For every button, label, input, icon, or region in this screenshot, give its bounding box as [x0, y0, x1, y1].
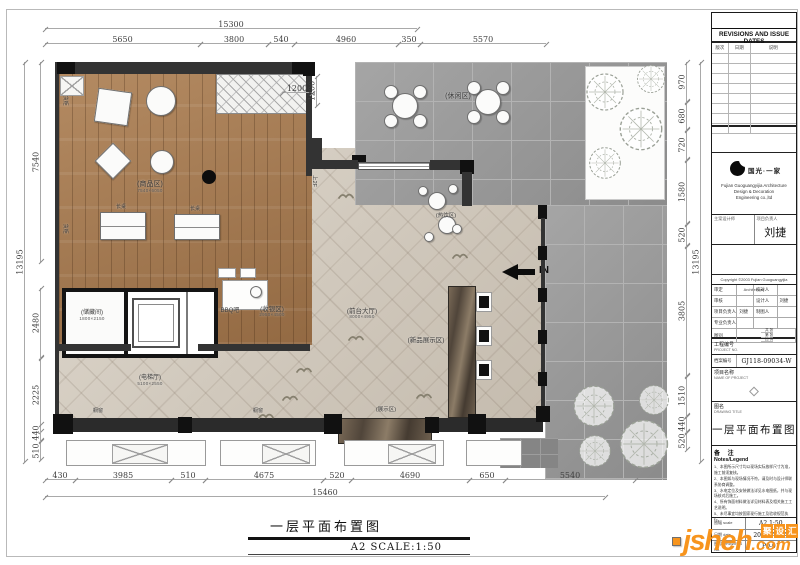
rev-cell	[729, 114, 751, 123]
room-label: (储藏间)1800×2150	[79, 310, 104, 322]
note-line: 1、本图所示尺寸均以现场实际放样尺寸为准，施工前须复核。	[714, 465, 794, 477]
logo-icon	[730, 161, 745, 176]
arrow-tail	[517, 269, 535, 275]
rev-cell	[712, 114, 729, 123]
rev-cell	[751, 64, 796, 73]
caption-title: 一层平面布置图	[248, 516, 470, 540]
approval-table: 审定校对人审核设计人刘捷项目负责人刘捷制图人专业负责人图别共 张第 张比 例	[712, 285, 796, 339]
elevator-cab	[132, 298, 180, 348]
dimension-label: 510	[40, 441, 41, 460]
chair-round	[384, 85, 398, 99]
dimension-label: 680	[686, 102, 687, 130]
dimension-label: 5540	[505, 479, 635, 480]
archive-no-row: 档案编号 GJ118-09034-W	[712, 355, 796, 368]
table-round	[428, 192, 446, 210]
room-label: (热饮区)	[436, 213, 456, 219]
column-block	[479, 364, 489, 376]
wall-segment	[55, 62, 59, 424]
lead-designer-cell: 主案设计师	[712, 215, 755, 244]
column-block	[303, 62, 315, 76]
dimension-label: 650	[469, 479, 505, 480]
rev-cell	[729, 104, 751, 113]
dimension-label: 510	[171, 479, 205, 480]
room-label: (收银区)2950×4500	[259, 306, 284, 318]
approval-cell	[737, 285, 754, 295]
dimension-label: 4690	[351, 479, 469, 480]
approval-cell: 专业负责人	[712, 318, 737, 328]
rev-cell	[729, 74, 751, 83]
dimension-label: 720	[686, 130, 687, 160]
dimension-label: 3800	[200, 43, 268, 44]
drawing-title-text: 一层平面布置图	[712, 422, 796, 437]
column-block	[425, 417, 439, 433]
approval-cell: 项目负责人	[712, 307, 737, 317]
column-block	[324, 414, 342, 434]
rev-cell	[712, 94, 729, 103]
dimension-label: 440	[40, 424, 41, 441]
column-block	[479, 330, 489, 342]
chair-round	[413, 114, 427, 128]
approval-cell: 校对人	[754, 285, 778, 295]
room-label: (商品区)7540×6050	[137, 181, 163, 194]
column-block	[538, 205, 547, 219]
dimension-label: 440	[686, 416, 687, 432]
company-logo: 国光·一家 Fujian Guoguangyijia Architecture …	[712, 153, 796, 215]
rev-cell	[751, 54, 796, 63]
note-line: 2、本图如与现场情况不符，请及时与设计师联系协商调整。	[714, 477, 794, 489]
rev-cell	[751, 84, 796, 93]
rev-cell	[712, 74, 729, 83]
wall-segment	[198, 344, 310, 351]
column-block	[178, 417, 192, 433]
rev-cell: 说明	[751, 43, 796, 53]
room-label: (新品展示区)	[408, 337, 445, 344]
approval-cell	[778, 285, 796, 295]
column-block	[468, 414, 486, 434]
rev-cell: 日期	[729, 43, 751, 53]
room-label: 上2F	[311, 175, 317, 187]
project-manager-name: 刘捷	[755, 224, 797, 240]
display-box	[240, 268, 256, 278]
table-round	[448, 184, 458, 194]
rev-cell: 版次	[712, 43, 729, 53]
dimension-label: 520	[686, 224, 687, 246]
table-round	[424, 232, 434, 242]
room-label: 货柜	[61, 224, 67, 234]
rev-cell	[712, 84, 729, 93]
rev-cell	[729, 94, 751, 103]
dimension-label: 5570	[420, 43, 546, 44]
dimension-label: 15300	[45, 28, 417, 29]
project-manager-cell: 项目负责人 刘捷	[755, 215, 797, 244]
rev-cell	[712, 64, 729, 73]
designer-row: 主案设计师 项目负责人 刘捷	[712, 215, 796, 245]
approval-cell: 审核	[712, 296, 737, 306]
titleblock-spacer	[712, 127, 796, 153]
dimension-label: 1200	[316, 76, 317, 106]
approval-cell	[754, 318, 778, 328]
elevator-divider	[186, 292, 188, 354]
notes-box: 备 注 Notes/Legend 1、本图所示尺寸均以现场实际放样尺寸为准，施工…	[712, 446, 796, 518]
dimension-label: 4960	[294, 43, 398, 44]
room-label: 长桌	[190, 207, 200, 213]
dimension-label: 520	[323, 479, 351, 480]
dimension-label: 350	[398, 43, 420, 44]
arrow-icon	[502, 264, 518, 280]
dimension-label: 430	[45, 479, 75, 480]
column-dot	[202, 170, 216, 184]
room-label: 长桌	[116, 205, 126, 211]
approval-cell	[778, 318, 796, 328]
approval-cell: 制图人	[754, 307, 778, 317]
courtyard	[585, 66, 665, 200]
rev-cell	[751, 104, 796, 113]
approval-cell: 设计人	[754, 296, 778, 306]
room-label: 橱窗	[253, 409, 263, 415]
note-line: 4、所有饰面材料做法详见材料表及相关施工工艺说明。	[714, 500, 794, 512]
drawing-sheet: IN 1530056503800540496035055701200430398…	[0, 0, 800, 565]
watermark-zh: 聚设汇	[761, 524, 798, 538]
drawing-title-box: 图名 DRAWING TITLE 一层平面布置图	[712, 402, 796, 446]
company-name-en: Fujian Guoguangyijia Architecture Design…	[714, 183, 794, 201]
chair-round	[413, 85, 427, 99]
column-block	[479, 296, 489, 308]
note-line: 3、水电定位及安装做法详见水电图纸，并与现场核对后施工。	[714, 489, 794, 501]
project-name-box: 项目名称 NAME OF PROJECT	[712, 368, 796, 402]
table-round	[146, 86, 176, 116]
hatched-panel	[388, 444, 436, 464]
company-name-zh: 国光·一家	[748, 165, 781, 175]
dimension-label: 540	[268, 43, 294, 44]
column-block	[538, 330, 547, 344]
project-name-mark	[749, 387, 759, 397]
window-band	[358, 162, 430, 170]
rev-cell	[712, 104, 729, 113]
room-label: 货柜	[61, 96, 67, 106]
title-block: REVISIONS AND ISSUE DATES 版次日期说明 国光·一家 F…	[711, 12, 797, 553]
hatched-panel	[112, 444, 168, 464]
chair-round	[496, 110, 510, 124]
column-block	[538, 372, 547, 386]
hatched-panel	[262, 444, 310, 464]
approval-cell	[737, 296, 754, 306]
wall-segment	[57, 344, 131, 351]
rev-cell	[751, 94, 796, 103]
dimension-label: 1580	[686, 160, 687, 224]
dimension-label: 4675	[205, 479, 323, 480]
dimension-label: 2225	[40, 358, 41, 432]
dimension-label: 3985	[75, 479, 171, 480]
rev-cell	[729, 84, 751, 93]
rev-cell	[751, 114, 796, 123]
rev-cell	[751, 74, 796, 83]
table-round	[418, 186, 428, 196]
project-no-row: 工程编号 PROJECT NO.	[712, 339, 796, 355]
chair-round	[496, 81, 510, 95]
approval-cell: 审定	[712, 285, 737, 295]
wall-segment	[430, 160, 464, 170]
room-label: BBQ吧	[221, 308, 240, 315]
column-block	[538, 288, 547, 302]
archive-number: GJ118-09034-W	[737, 355, 796, 367]
rev-cell	[729, 54, 751, 63]
table-round	[150, 150, 174, 174]
dimension-label: 1510	[686, 376, 687, 416]
dimension-label: 970	[686, 62, 687, 102]
rev-cell	[729, 64, 751, 73]
notes-list: 1、本图所示尺寸均以现场实际放样尺寸为准，施工前须复核。2、本图如与现场情况不符…	[714, 465, 794, 524]
column-block	[53, 414, 73, 434]
display-box	[466, 440, 522, 466]
column-block	[57, 62, 75, 74]
wall-segment	[312, 160, 358, 169]
marble-finish	[448, 286, 476, 418]
outdoor-tile-strip	[545, 205, 667, 480]
entrance-arrow: IN	[502, 263, 558, 281]
dimension-label: 520	[686, 432, 687, 450]
approval-cell: 刘捷	[737, 307, 754, 317]
chair-round	[384, 114, 398, 128]
watermark-square-icon	[672, 537, 681, 546]
room-label: (展示区)	[376, 407, 396, 413]
approval-cell	[778, 307, 796, 317]
dimension-label: 2480	[40, 288, 41, 358]
room-label: (电梯厅)5100×2550	[137, 375, 162, 387]
display-box	[218, 268, 236, 278]
column-block	[538, 246, 547, 260]
table-round	[250, 286, 262, 298]
room-label: (休闲区)	[445, 93, 471, 101]
rev-cell	[712, 54, 729, 63]
table-round	[452, 224, 462, 234]
caption-scale: A2 SCALE:1:50	[248, 540, 470, 555]
long-table	[100, 212, 146, 240]
approval-cell: 刘捷	[778, 296, 796, 306]
room-label: 橱窗	[93, 409, 103, 415]
table-square	[94, 88, 132, 126]
long-table	[174, 214, 220, 240]
dimension-label: 13195	[24, 62, 25, 462]
wall-segment	[462, 172, 472, 206]
wall-segment	[57, 62, 310, 74]
copyright-line: Copyright ©2003 Fujian Guoguangyijia Arc…	[712, 275, 796, 285]
column-block	[536, 406, 550, 422]
chair-round	[467, 110, 481, 124]
dimension-label: 13195	[700, 62, 701, 462]
stamp-box	[712, 245, 796, 275]
revisions-header: REVISIONS AND ISSUE DATES	[712, 13, 796, 43]
staircase	[216, 74, 310, 114]
room-label: (前台大厅)8000×4950	[347, 308, 377, 320]
revisions-table: 版次日期说明	[712, 43, 796, 127]
dimension-label: 5650	[45, 43, 200, 44]
dimension-label: 15460	[45, 496, 605, 497]
drawing-caption: 一层平面布置图 A2 SCALE:1:50	[248, 516, 470, 555]
approval-cell	[737, 318, 754, 328]
dimension-label: 3805	[686, 246, 687, 376]
watermark: jsheh.com 聚设汇	[670, 521, 800, 565]
hatched-panel	[60, 76, 84, 96]
dimension-label: 7540	[40, 62, 41, 262]
